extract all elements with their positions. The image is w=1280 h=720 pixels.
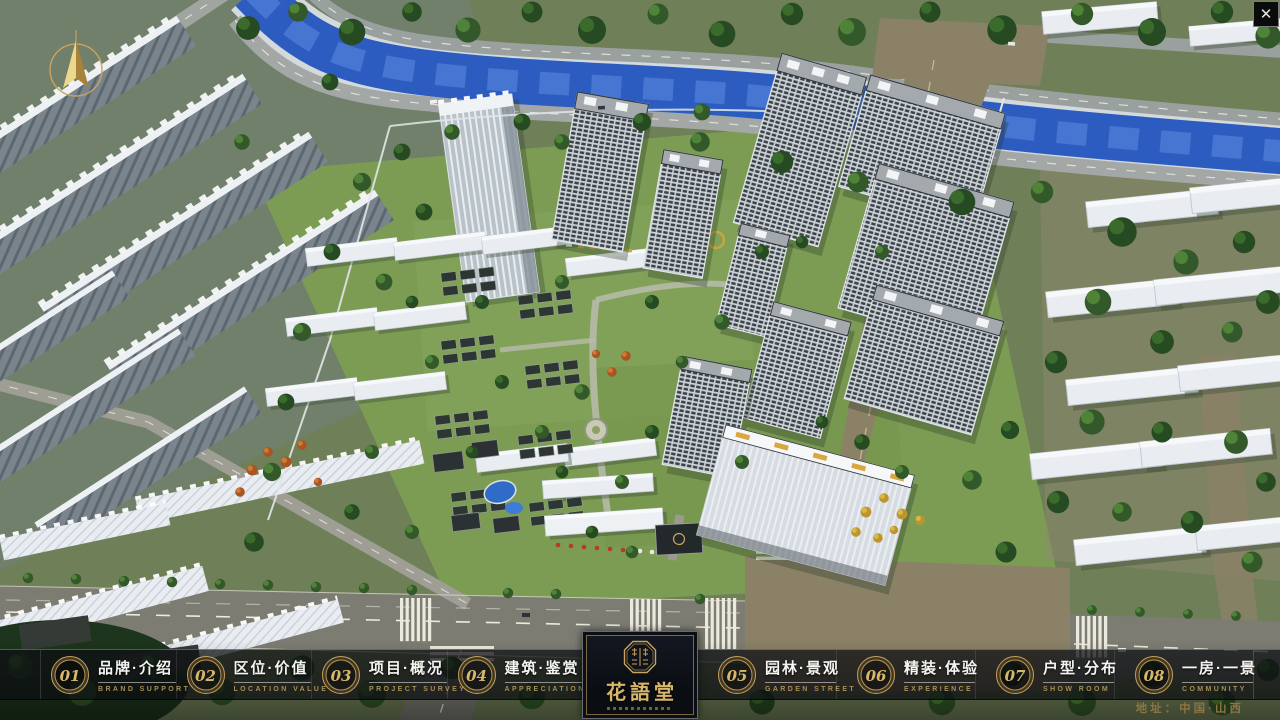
nav-label-en: SHOW ROOM <box>1043 686 1114 693</box>
nav-label-zh: 户型·分布 <box>1043 657 1114 683</box>
nav-label-zh: 一房·一景 <box>1182 657 1253 683</box>
nav-label-zh: 品牌·介绍 <box>98 657 176 683</box>
item-number-badge: 04 <box>458 656 496 694</box>
close-button[interactable]: ✕ <box>1253 1 1279 27</box>
logo-subtitle-rule <box>607 707 673 710</box>
seal-icon <box>623 640 657 674</box>
nav-item-floorplan[interactable]: 07 户型·分布SHOW ROOM <box>975 650 1114 699</box>
bottom-navbar: 01 品牌·介绍BRAND SUPPORT 02 区位·价值LOCATION V… <box>0 649 1280 700</box>
nav-label-zh: 区位·价值 <box>234 657 312 683</box>
item-number: 05 <box>727 667 748 685</box>
item-number-badge: 05 <box>718 656 756 694</box>
item-number: 07 <box>1005 667 1026 685</box>
project-name: 花語堂 <box>602 676 678 705</box>
item-number-badge: 07 <box>996 656 1034 694</box>
nav-label-en: APPRECIATION <box>505 686 583 693</box>
presentation-app: ✕ 01 品牌·介绍BRAND SUPPORT 02 区位·价值LOCATION… <box>0 0 1280 720</box>
nav-spacer <box>0 650 41 699</box>
item-number: 03 <box>331 667 352 685</box>
item-number-badge: 03 <box>322 656 360 694</box>
item-number-badge: 01 <box>51 656 89 694</box>
project-logo: 花語堂 <box>582 631 698 719</box>
nav-item-view[interactable]: 08 一房·一景COMMUNITY <box>1114 650 1253 699</box>
nav-label-en: EXPERIENCE <box>904 686 975 693</box>
item-number-badge: 08 <box>1135 656 1173 694</box>
nav-spacer <box>1253 650 1280 699</box>
item-number: 01 <box>60 667 81 685</box>
nav-item-architecture[interactable]: 04 建筑·鉴赏APPRECIATION <box>447 650 583 699</box>
nav-label-zh: 建筑·鉴赏 <box>505 657 583 683</box>
nav-label-en: LOCATION VALUE <box>234 686 312 693</box>
nav-label-zh: 园林·景观 <box>765 657 836 683</box>
nav-label-en: COMMUNITY <box>1182 686 1253 693</box>
nav-left-group: 01 品牌·介绍BRAND SUPPORT 02 区位·价值LOCATION V… <box>0 650 582 699</box>
nav-label-en: BRAND SUPPORT <box>98 686 176 693</box>
nav-item-location[interactable]: 02 区位·价值LOCATION VALUE <box>176 650 312 699</box>
item-number: 04 <box>466 667 487 685</box>
nav-item-interior[interactable]: 06 精装·体验EXPERIENCE <box>836 650 975 699</box>
item-number: 02 <box>195 667 216 685</box>
item-number-badge: 06 <box>857 656 895 694</box>
nav-label-zh: 项目·概况 <box>369 657 447 683</box>
address-text: 地址：中国·山西 <box>1136 700 1244 716</box>
nav-label-en: PROJECT SURVEY <box>369 686 447 693</box>
item-number-badge: 02 <box>187 656 225 694</box>
nav-item-garden[interactable]: 05 园林·景观GARDEN STREET <box>698 650 836 699</box>
nav-label-en: GARDEN STREET <box>765 686 836 693</box>
item-number: 06 <box>866 667 887 685</box>
nav-item-project[interactable]: 03 项目·概况PROJECT SURVEY <box>311 650 447 699</box>
aerial-map[interactable] <box>0 0 1280 720</box>
nav-right-group: 05 园林·景观GARDEN STREET 06 精装·体验EXPERIENCE… <box>698 650 1280 699</box>
item-number: 08 <box>1144 667 1165 685</box>
nav-item-brand[interactable]: 01 品牌·介绍BRAND SUPPORT <box>41 650 176 699</box>
nav-label-zh: 精装·体验 <box>904 657 975 683</box>
